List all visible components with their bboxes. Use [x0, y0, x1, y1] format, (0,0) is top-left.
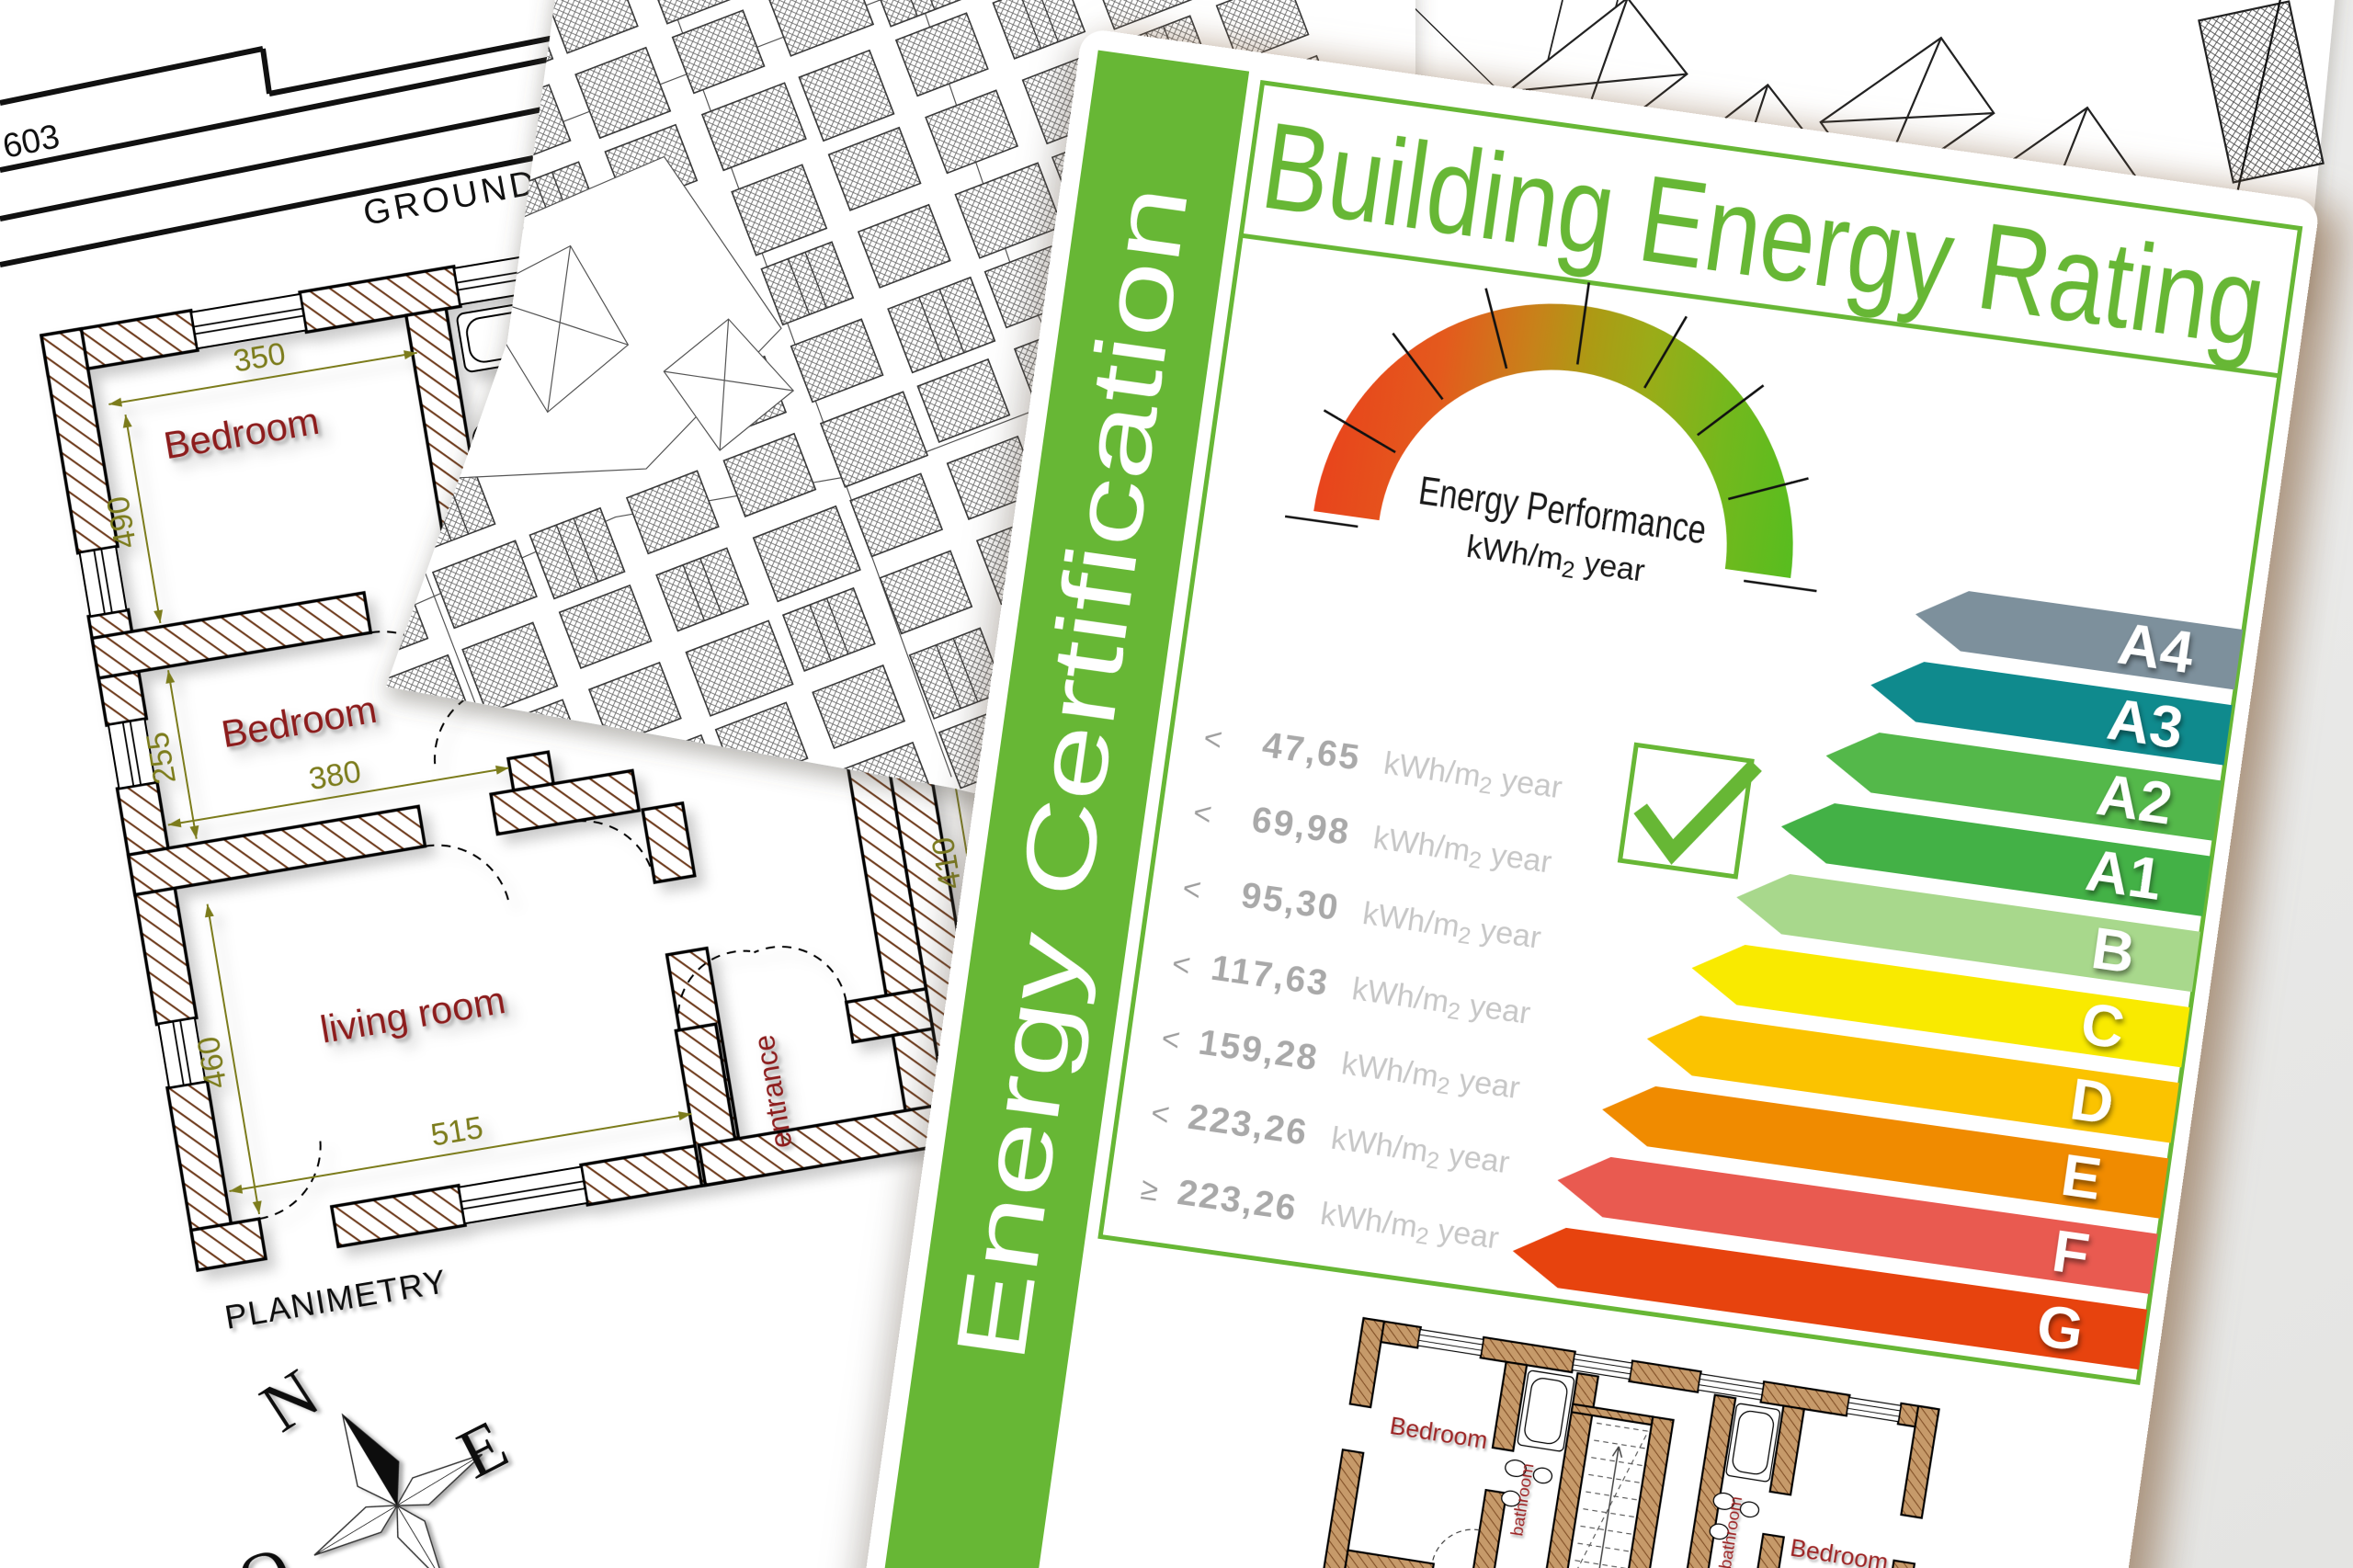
svg-text:G: G: [2033, 1292, 2087, 1364]
svg-text:A3: A3: [2103, 686, 2187, 762]
svg-text:A1: A1: [2082, 836, 2165, 913]
svg-text:A4: A4: [2114, 610, 2198, 687]
svg-text:A2: A2: [2093, 761, 2177, 837]
